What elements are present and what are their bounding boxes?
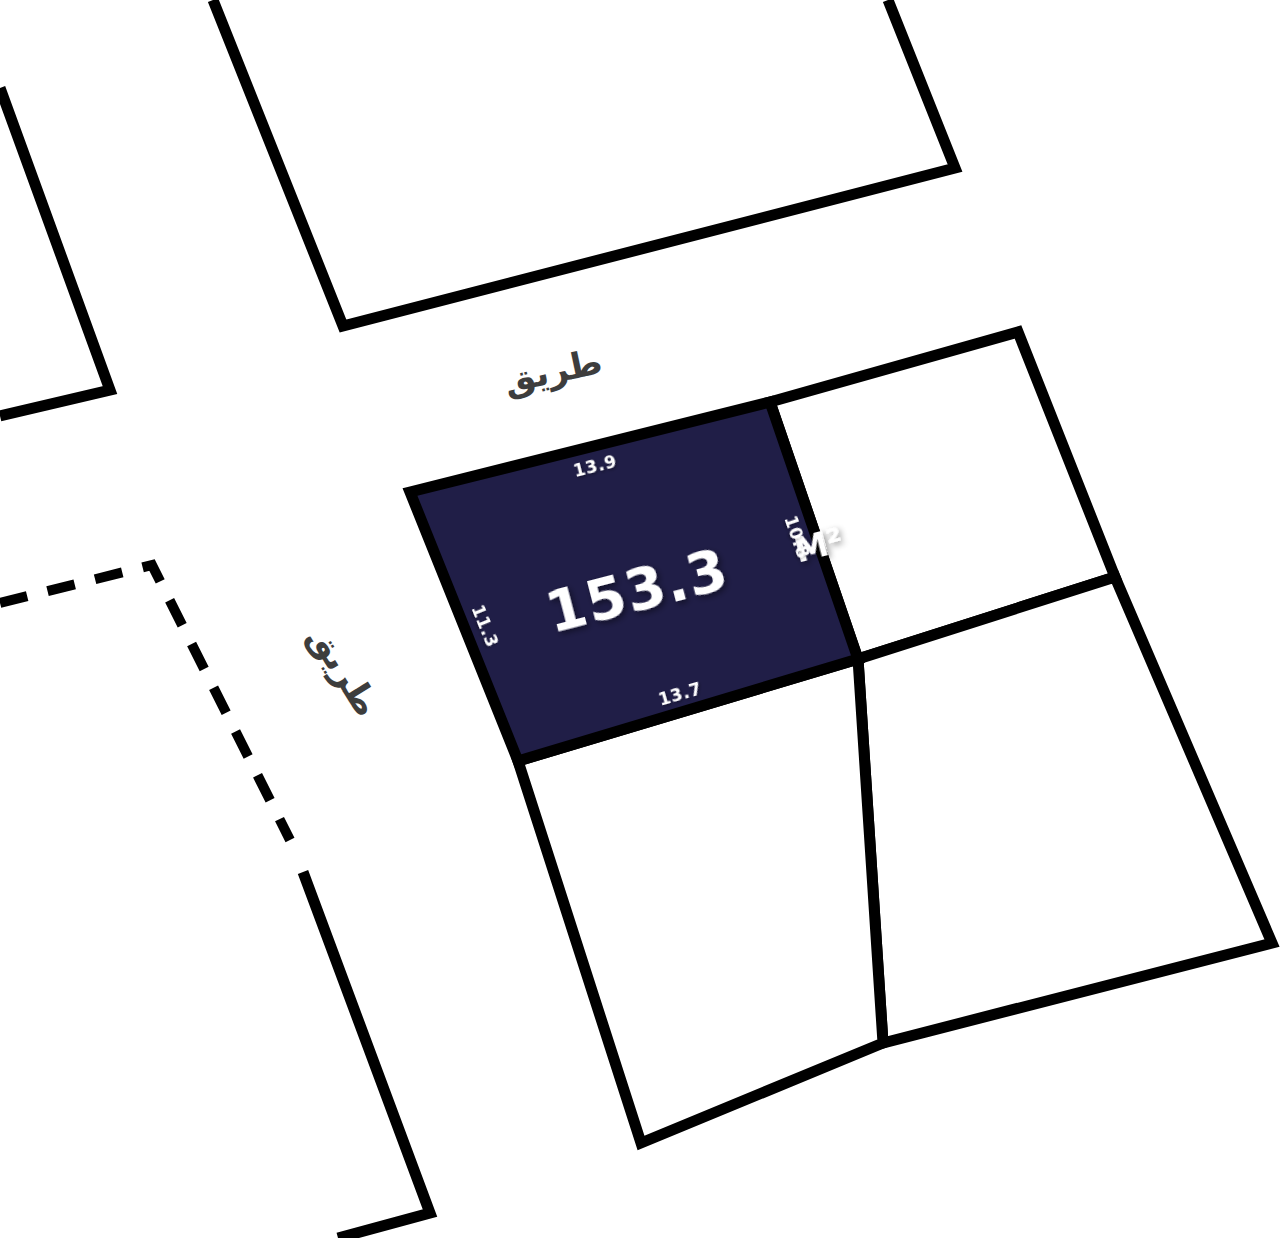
parcel-outline-top-left[interactable]	[0, 88, 110, 416]
street-label-left: طريق	[300, 618, 387, 724]
parcel-outline-bottom-left[interactable]	[303, 872, 430, 1238]
parcel-bottom-right[interactable]	[858, 577, 1272, 1043]
street-label-top: طريق	[500, 341, 606, 402]
dashed-boundary	[0, 565, 290, 840]
parcel-top[interactable]	[213, 0, 955, 326]
parcel-map-canvas: طريق طريق 153.3M² 13.9 10.8 11.3 13.7	[0, 0, 1280, 1238]
